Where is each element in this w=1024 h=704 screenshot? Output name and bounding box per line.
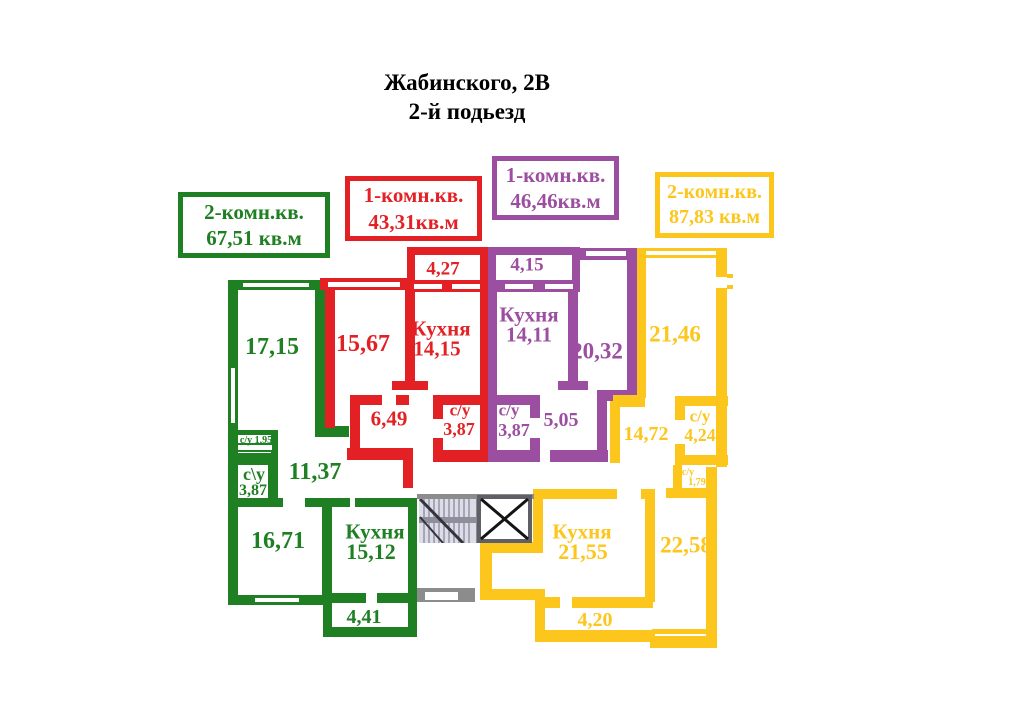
wall	[666, 488, 708, 498]
staircase	[419, 499, 476, 543]
wall	[396, 395, 409, 405]
wall	[433, 405, 443, 419]
window-gap	[425, 592, 458, 600]
legend-type-label: 1-комн.кв.	[506, 162, 606, 188]
wall	[322, 505, 332, 597]
wall	[377, 593, 408, 603]
room-area-label: 3,87	[498, 421, 530, 439]
legend-type-label: 2-комн.кв.	[667, 180, 762, 205]
legend-area-label: 87,83 кв.м	[669, 205, 760, 230]
window-gap	[716, 277, 727, 288]
wall	[550, 450, 608, 462]
wall	[637, 248, 723, 258]
wall	[637, 248, 646, 398]
room-area-label: 21,55	[558, 541, 608, 563]
wall	[727, 285, 733, 289]
wall	[433, 450, 489, 462]
room-area-label: 21,46	[649, 323, 701, 346]
wall	[558, 381, 588, 390]
elevator	[477, 494, 533, 544]
wall	[535, 630, 655, 642]
wall	[268, 465, 278, 501]
window-gap	[231, 368, 235, 423]
room-area-label: с/у	[450, 402, 471, 419]
wall	[488, 285, 497, 462]
legend-box-yellow: 2-комн.кв. 87,83 кв.м	[655, 172, 774, 238]
window-gap	[328, 282, 400, 287]
wall	[597, 401, 607, 452]
room-area-label: 11,37	[289, 460, 342, 484]
wall	[535, 597, 560, 608]
wall	[325, 288, 335, 428]
window-gap	[545, 284, 573, 289]
floor-plan: Жабинского, 2В 2-й подьезд 2-комн.кв. 67…	[0, 0, 1024, 704]
room-area-label: 16,71	[251, 529, 305, 553]
wall	[323, 627, 417, 637]
wall	[392, 381, 428, 390]
wall	[727, 274, 733, 278]
wall	[572, 597, 653, 608]
building-title: Жабинского, 2В	[384, 70, 550, 96]
wall	[641, 489, 655, 499]
legend-type-label: 1-комн.кв.	[364, 182, 464, 208]
wall	[350, 395, 382, 405]
room-area-label: с/у	[499, 402, 520, 419]
room-area-label: с\у	[243, 465, 265, 483]
room-area-label: 3,87	[239, 483, 267, 499]
wall	[645, 490, 655, 602]
wall	[322, 593, 366, 603]
room-area-label: 1,79	[688, 478, 706, 488]
wall	[675, 396, 685, 420]
wall	[530, 438, 540, 462]
entrance-subtitle: 2-й подьезд	[409, 99, 526, 125]
room-area-label: 22,58	[660, 534, 712, 557]
wall	[627, 248, 637, 396]
room-area-label: 6,49	[371, 409, 408, 430]
wall	[533, 489, 543, 545]
wall	[237, 498, 283, 507]
legend-box-green: 2-комн.кв. 67,51 кв.м	[178, 192, 330, 258]
wall	[652, 629, 707, 634]
room-area-label: 4,15	[510, 256, 543, 275]
wall	[673, 465, 682, 490]
room-area-label: 4,24	[684, 426, 716, 444]
legend-area-label: 67,51 кв.м	[206, 225, 302, 251]
wall	[675, 455, 728, 465]
wall	[610, 401, 620, 463]
room-area-label: 4,20	[578, 610, 613, 630]
wall	[315, 280, 325, 432]
legend-box-red: 1-комн.кв. 43,31кв.м	[345, 176, 482, 241]
room-area-label: 4,41	[347, 607, 382, 627]
room-area-label: 14,15	[413, 339, 460, 360]
room-area-label: с/у 1,95	[240, 436, 272, 446]
window-gap	[452, 284, 480, 289]
room-area-label: 14,11	[506, 325, 552, 346]
window-gap	[505, 284, 533, 289]
wall	[650, 636, 717, 648]
wall	[403, 460, 413, 488]
legend-area-label: 46,46кв.м	[510, 188, 600, 214]
window-gap	[255, 598, 299, 602]
window-gap	[414, 284, 442, 289]
room-area-label: с/у	[690, 408, 711, 425]
window-gap	[243, 283, 309, 287]
room-area-label: 4,27	[426, 260, 459, 279]
room-area-label: 3,87	[443, 420, 475, 438]
legend-type-label: 2-комн.кв.	[204, 199, 304, 225]
legend-box-purple: 1-комн.кв. 46,46кв.м	[492, 156, 619, 220]
room-area-label: 15,67	[336, 332, 390, 356]
window-gap	[586, 251, 626, 256]
legend-area-label: 43,31кв.м	[368, 209, 458, 235]
wall	[347, 448, 413, 460]
room-area-label: 14,72	[624, 424, 669, 444]
room-area-label: 15,12	[346, 541, 396, 563]
wall	[355, 498, 415, 507]
room-area-label: 5,05	[544, 410, 579, 430]
wall	[408, 498, 417, 637]
room-area-label: 20,32	[571, 340, 623, 363]
wall	[533, 489, 617, 499]
room-area-label: 17,15	[245, 335, 299, 359]
wall	[407, 247, 483, 255]
wall	[530, 395, 540, 418]
